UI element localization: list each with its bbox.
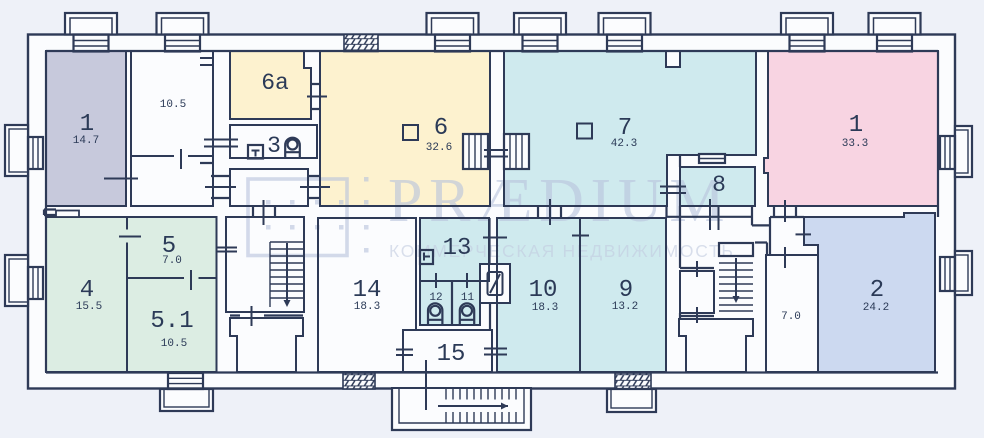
svg-text:11: 11 [461,292,475,304]
svg-text:9: 9 [619,277,633,304]
svg-text:10.5: 10.5 [161,338,187,350]
svg-text:1: 1 [849,112,863,139]
svg-text:10: 10 [529,277,558,304]
svg-text:КОММЕРЧЕСКАЯ НЕДВИЖИМОСТЬ: КОММЕРЧЕСКАЯ НЕДВИЖИМОСТЬ [389,241,735,261]
svg-text:18.3: 18.3 [354,301,380,313]
svg-text:8: 8 [712,172,726,198]
svg-text:6a: 6a [261,70,289,96]
svg-text:15.5: 15.5 [76,301,102,313]
svg-text:3: 3 [267,133,281,159]
svg-text:33.3: 33.3 [842,138,868,150]
svg-text:15: 15 [437,341,466,368]
svg-text:14: 14 [353,277,382,304]
svg-text:32.6: 32.6 [426,142,452,154]
svg-text:2: 2 [870,277,884,304]
svg-text:4: 4 [80,277,94,304]
svg-text:10.5: 10.5 [160,99,186,111]
svg-text:13: 13 [443,235,472,262]
svg-text:14.7: 14.7 [73,135,99,147]
svg-text:12: 12 [429,292,442,304]
svg-text:13.2: 13.2 [612,301,638,313]
svg-text:6: 6 [434,115,448,142]
svg-text:24.2: 24.2 [863,302,889,314]
svg-text:5.1: 5.1 [150,308,193,335]
svg-text:7.0: 7.0 [781,311,801,323]
svg-text:1: 1 [80,111,94,138]
svg-text:18.3: 18.3 [532,302,558,314]
svg-text:7.0: 7.0 [162,255,182,267]
svg-text:42.3: 42.3 [611,138,637,150]
